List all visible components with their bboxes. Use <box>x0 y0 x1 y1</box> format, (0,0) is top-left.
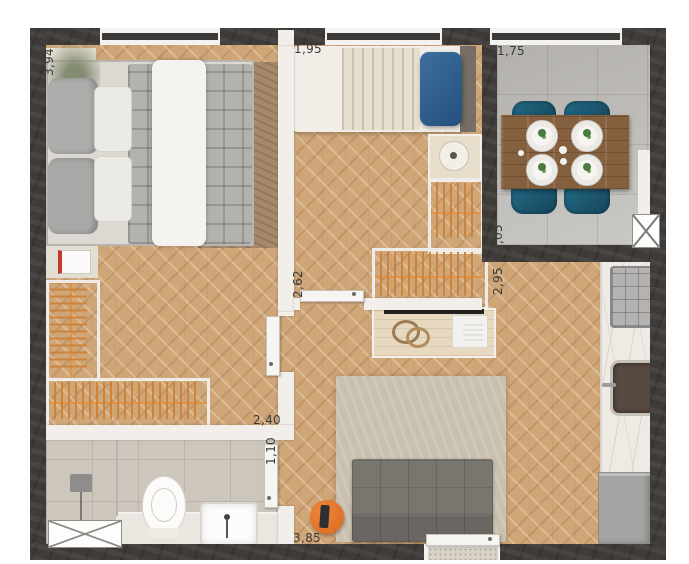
decor-tray-center <box>450 152 457 159</box>
cup <box>560 158 567 165</box>
floor-plan: 3,94 1,95 1,75 2,62 2,05 2,95 2,40 1,10 … <box>0 0 689 564</box>
wall-segment <box>278 312 294 316</box>
door-handle <box>352 292 356 296</box>
window-bedroom1 <box>100 28 220 45</box>
dimension-label-bedroom1-length: 3,94 <box>42 40 56 84</box>
remote-control <box>319 505 330 529</box>
window-glass <box>102 33 218 40</box>
shower-glass-partition <box>116 440 118 516</box>
decor-beads <box>406 327 430 348</box>
bathroom-sink <box>200 502 258 546</box>
sink-drain <box>226 520 228 538</box>
wardrobe-open-left <box>46 280 100 381</box>
window-glass <box>492 33 620 40</box>
wardrobe-open-right <box>428 178 484 254</box>
wall-bathroom-top <box>46 425 294 440</box>
white-duvet <box>152 60 206 246</box>
place-setting <box>526 120 558 152</box>
pillow-white <box>94 86 132 152</box>
outer-wall-right <box>650 28 666 560</box>
window-dining <box>490 28 622 45</box>
wall-dining-bottom <box>482 245 650 262</box>
dimension-label-dining-length: 2,05 <box>491 216 505 260</box>
outer-wall-left <box>30 28 46 560</box>
window-bedroom2 <box>325 28 442 45</box>
dining-chair <box>511 185 557 214</box>
shower-head <box>70 474 92 492</box>
bed-headboard <box>460 46 476 132</box>
utility-shaft-marker <box>632 214 660 248</box>
dining-chair <box>564 186 610 214</box>
x-icon <box>49 521 121 547</box>
dimension-label-dining-width: 1,75 <box>489 44 533 58</box>
dimension-label-bedroom2-width: 1,95 <box>286 42 330 56</box>
shower-tray-marker <box>48 520 122 548</box>
door-handle <box>269 362 273 366</box>
place-setting <box>571 120 603 152</box>
pillow-blue <box>420 52 462 126</box>
x-icon <box>633 215 659 247</box>
wall-bedroom2-bottom <box>364 298 482 310</box>
toilet-seat <box>151 488 177 522</box>
place-setting <box>526 154 558 186</box>
cup <box>559 146 567 154</box>
decor-book <box>452 315 488 348</box>
pillow-white <box>94 156 132 222</box>
place-setting <box>571 154 603 186</box>
window-glass <box>327 33 440 40</box>
door-handle <box>267 496 271 500</box>
toilet-base <box>147 528 179 538</box>
sofa <box>352 459 493 542</box>
pillow-gray <box>48 158 98 234</box>
door-handle <box>488 537 492 541</box>
outer-wall-bottom <box>30 544 666 560</box>
dimension-label-living-width: 3,85 <box>285 531 329 545</box>
dimension-label-living-length: 2,95 <box>491 259 505 303</box>
dimension-label-bedroom1-width: 2,40 <box>245 413 289 427</box>
bedroom1-door <box>266 316 280 376</box>
magazine <box>58 250 91 274</box>
doormat <box>428 547 498 560</box>
folded-blanket <box>342 48 420 130</box>
dimension-label-bath-entry: 1,10 <box>264 429 278 473</box>
pillow-gray <box>48 78 98 154</box>
wardrobe-open-bottom <box>46 378 210 432</box>
refrigerator <box>598 472 652 544</box>
faucet <box>602 383 616 387</box>
utility-niche <box>638 150 650 214</box>
dimension-label-bedroom2-length: 2,62 <box>291 262 305 306</box>
shower-hose <box>80 492 82 520</box>
cup <box>518 150 524 156</box>
